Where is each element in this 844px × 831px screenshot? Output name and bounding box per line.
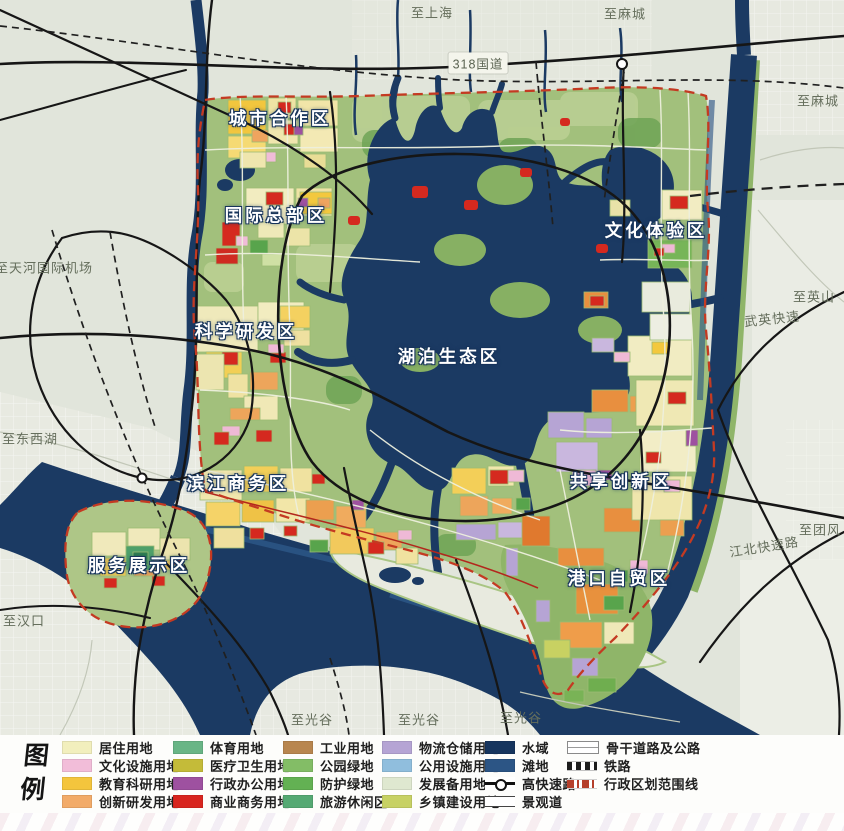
legend-swatch-fill — [173, 741, 203, 754]
legend-column-4: 物流仓储用地公用设施用地发展备用地乡镇建设用地 — [382, 741, 500, 808]
legend-label: 滩地 — [522, 756, 549, 775]
legend-item: 景观道 — [485, 795, 576, 808]
legend-label: 居住用地 — [99, 738, 153, 757]
legend-item: 发展备用地 — [382, 777, 500, 790]
legend-swatch-fill — [283, 777, 313, 790]
legend-item: 居住用地 — [62, 741, 180, 754]
legend-item: 铁路 — [567, 759, 701, 772]
legend-swatch-fill — [62, 777, 92, 790]
legend-label: 教育科研用地 — [99, 774, 180, 793]
legend-swatch-fill — [485, 741, 515, 754]
legend-item: 公用设施用地 — [382, 759, 500, 772]
legend-swatch-fill — [382, 741, 412, 754]
legend-item: 滩地 — [485, 759, 576, 772]
legend-item: 乡镇建设用地 — [382, 795, 500, 808]
legend-item: 行政办公用地 — [173, 777, 291, 790]
legend-label: 发展备用地 — [419, 774, 487, 793]
legend-item: 文化设施用地 — [62, 759, 180, 772]
legend-label: 创新研发用地 — [99, 792, 180, 811]
legend-label: 行政区划范围线 — [604, 774, 699, 793]
legend-item: 工业用地 — [283, 741, 388, 754]
legend-swatch-trunk — [567, 741, 599, 754]
legend-swatch-boundary — [567, 779, 597, 789]
legend-swatch-fill — [382, 795, 412, 808]
legend-item: 防护绿地 — [283, 777, 388, 790]
legend-swatch-fill — [382, 777, 412, 790]
legend-item: 高快速路 — [485, 777, 576, 790]
planning-map-artwork — [0, 0, 844, 735]
legend-item: 物流仓储用地 — [382, 741, 500, 754]
legend-label: 商业商务用地 — [210, 792, 291, 811]
legend-label: 体育用地 — [210, 738, 264, 757]
legend-item: 创新研发用地 — [62, 795, 180, 808]
legend-column-2: 体育用地医疗卫生用地行政办公用地商业商务用地 — [173, 741, 291, 808]
legend-item: 公园绿地 — [283, 759, 388, 772]
legend-item: 医疗卫生用地 — [173, 759, 291, 772]
legend-label: 工业用地 — [320, 738, 374, 757]
legend-item: 骨干道路及公路 — [567, 741, 701, 754]
legend-swatch-fill — [283, 795, 313, 808]
legend-column-5: 水域滩地高快速路景观道 — [485, 741, 576, 808]
legend-label: 防护绿地 — [320, 774, 374, 793]
legend-swatch-fill — [62, 741, 92, 754]
legend-item: 行政区划范围线 — [567, 777, 701, 790]
legend-swatch-fill — [382, 759, 412, 772]
legend-label: 医疗卫生用地 — [210, 756, 291, 775]
legend-column-3: 工业用地公园绿地防护绿地旅游休闲区 — [283, 741, 388, 808]
legend-swatch-fill — [62, 795, 92, 808]
legend-label: 公园绿地 — [320, 756, 374, 775]
legend-item: 商业商务用地 — [173, 795, 291, 808]
legend-swatch-railway — [567, 761, 597, 771]
legend-label: 旅游休闲区 — [320, 792, 388, 811]
legend-label: 行政办公用地 — [210, 774, 291, 793]
legend-item: 水域 — [485, 741, 576, 754]
legend-swatch-fill — [283, 759, 313, 772]
legend-swatch-fill — [173, 777, 203, 790]
legend-column-6: 骨干道路及公路铁路行政区划范围线 — [567, 741, 701, 790]
legend-panel: 图 例 居住用地文化设施用地教育科研用地创新研发用地体育用地医疗卫生用地行政办公… — [0, 735, 844, 831]
legend-swatch-fill — [485, 759, 515, 772]
map-area: 城市合作区国际总部区文化体验区科学研发区湖泊生态区滨江商务区共享创新区服务展示区… — [0, 0, 844, 735]
legend-item: 旅游休闲区 — [283, 795, 388, 808]
planning-map-screenshot: 城市合作区国际总部区文化体验区科学研发区湖泊生态区滨江商务区共享创新区服务展示区… — [0, 0, 844, 831]
legend-column-1: 居住用地文化设施用地教育科研用地创新研发用地 — [62, 741, 180, 808]
legend-swatch-fill — [173, 795, 203, 808]
legend-label: 铁路 — [604, 756, 631, 775]
watermark-pattern — [0, 813, 844, 831]
legend-label: 文化设施用地 — [99, 756, 180, 775]
legend-label: 景观道 — [522, 792, 563, 811]
legend-label: 骨干道路及公路 — [606, 738, 701, 757]
legend-item: 教育科研用地 — [62, 777, 180, 790]
legend-swatch-fill — [173, 759, 203, 772]
legend-swatch-fill — [283, 741, 313, 754]
legend-swatch-expressway — [485, 777, 515, 790]
legend-swatch-scenic — [485, 796, 515, 807]
legend-item: 体育用地 — [173, 741, 291, 754]
legend-label: 水域 — [522, 738, 549, 757]
legend-swatch-fill — [62, 759, 92, 772]
